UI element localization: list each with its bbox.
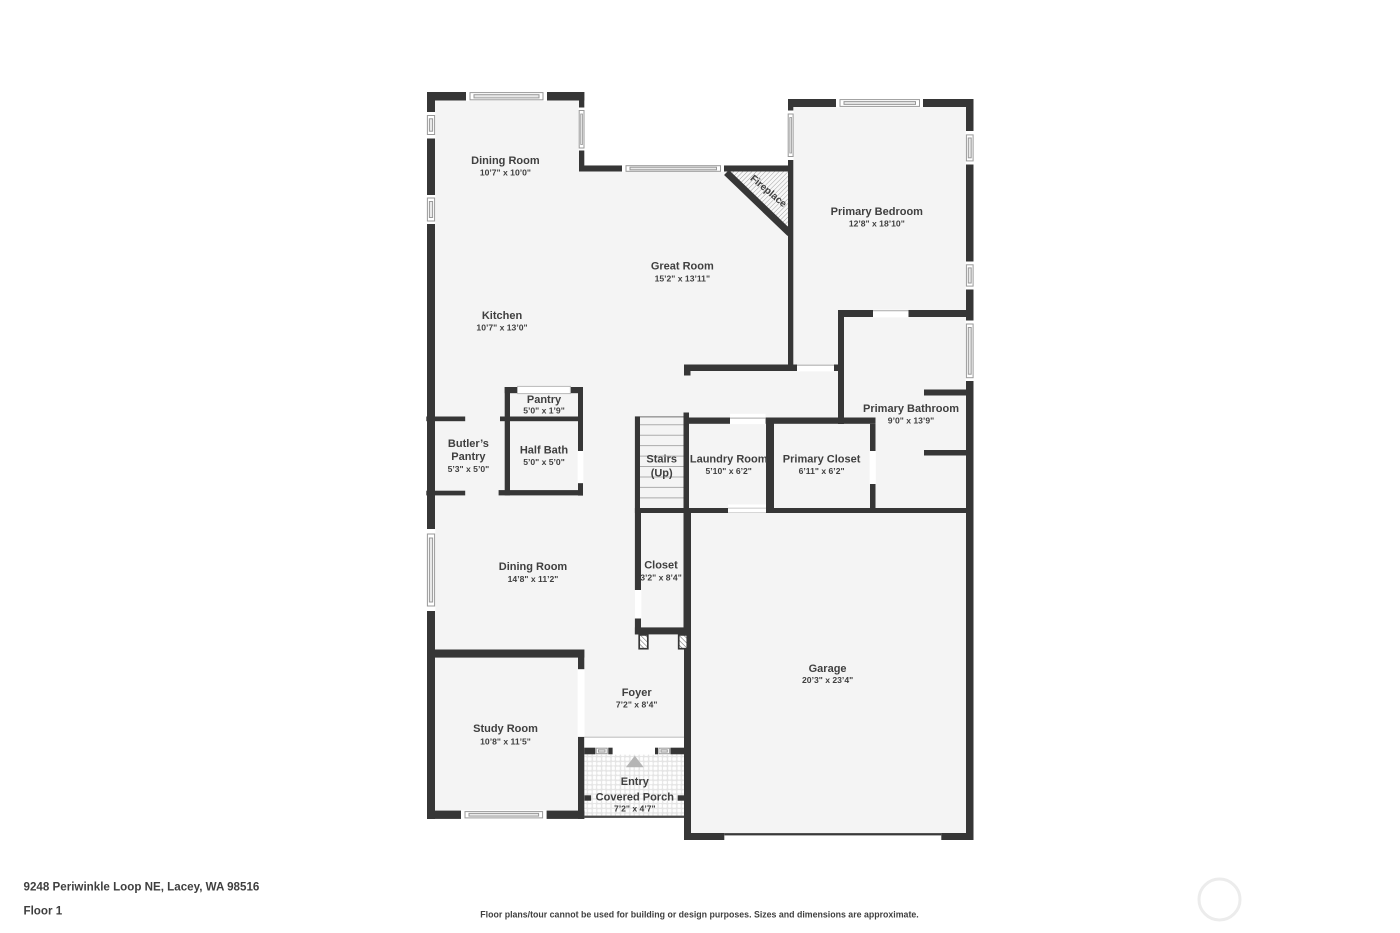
svg-text:5’3" x 5’0": 5’3" x 5’0" xyxy=(448,464,490,474)
svg-text:10’7" x 10’0": 10’7" x 10’0" xyxy=(480,168,531,178)
svg-text:10’8" x 11’5": 10’8" x 11’5" xyxy=(480,737,531,747)
svg-text:Covered Porch: Covered Porch xyxy=(596,792,675,804)
svg-text:(Up): (Up) xyxy=(651,468,673,480)
svg-text:5’10" x 6’2": 5’10" x 6’2" xyxy=(706,466,752,476)
svg-text:Primary Bathroom: Primary Bathroom xyxy=(863,403,959,415)
svg-text:20’3" x 23’4": 20’3" x 23’4" xyxy=(802,675,853,685)
svg-text:Floor plans/tour cannot be use: Floor plans/tour cannot be used for buil… xyxy=(480,909,918,919)
svg-text:6’11" x 6’2": 6’11" x 6’2" xyxy=(799,466,845,476)
svg-text:Pantry: Pantry xyxy=(451,451,486,463)
svg-text:Stairs: Stairs xyxy=(646,454,677,466)
svg-text:Dining Room: Dining Room xyxy=(499,561,568,573)
svg-text:Laundry Room: Laundry Room xyxy=(690,454,768,466)
svg-text:Half Bath: Half Bath xyxy=(520,445,569,457)
svg-text:Great Room: Great Room xyxy=(651,260,714,272)
svg-text:Foyer: Foyer xyxy=(622,687,653,699)
svg-text:Entry: Entry xyxy=(621,776,650,788)
svg-text:Butler’s: Butler’s xyxy=(448,438,489,450)
svg-text:9’0" x 13’9": 9’0" x 13’9" xyxy=(888,415,934,425)
svg-text:10’7" x 13’0": 10’7" x 13’0" xyxy=(476,322,527,332)
svg-text:9248 Periwinkle Loop NE, Lacey: 9248 Periwinkle Loop NE, Lacey, WA 98516 xyxy=(24,881,260,894)
svg-text:Garage: Garage xyxy=(809,663,847,675)
svg-text:5’0" x 1’9": 5’0" x 1’9" xyxy=(523,405,565,415)
svg-text:Dining Room: Dining Room xyxy=(471,155,540,167)
svg-text:Primary Bedroom: Primary Bedroom xyxy=(831,206,924,218)
svg-text:Pantry: Pantry xyxy=(527,394,562,406)
svg-text:Closet: Closet xyxy=(644,560,678,572)
svg-text:7’2" x 8’4": 7’2" x 8’4" xyxy=(616,700,658,710)
svg-text:7’2" x 4’7": 7’2" x 4’7" xyxy=(614,804,656,814)
svg-text:Primary Closet: Primary Closet xyxy=(783,454,861,466)
svg-text:5’0" x 5’0": 5’0" x 5’0" xyxy=(523,457,565,467)
svg-text:3’2" x 8’4": 3’2" x 8’4" xyxy=(640,572,682,582)
svg-text:Floor 1: Floor 1 xyxy=(24,904,63,917)
svg-text:12’8" x 18’10": 12’8" x 18’10" xyxy=(849,218,905,228)
svg-text:14’8" x 11’2": 14’8" x 11’2" xyxy=(508,574,559,584)
svg-text:Kitchen: Kitchen xyxy=(482,310,523,322)
svg-text:15’2" x 13’11": 15’2" x 13’11" xyxy=(655,273,710,283)
svg-text:Study Room: Study Room xyxy=(473,723,538,735)
